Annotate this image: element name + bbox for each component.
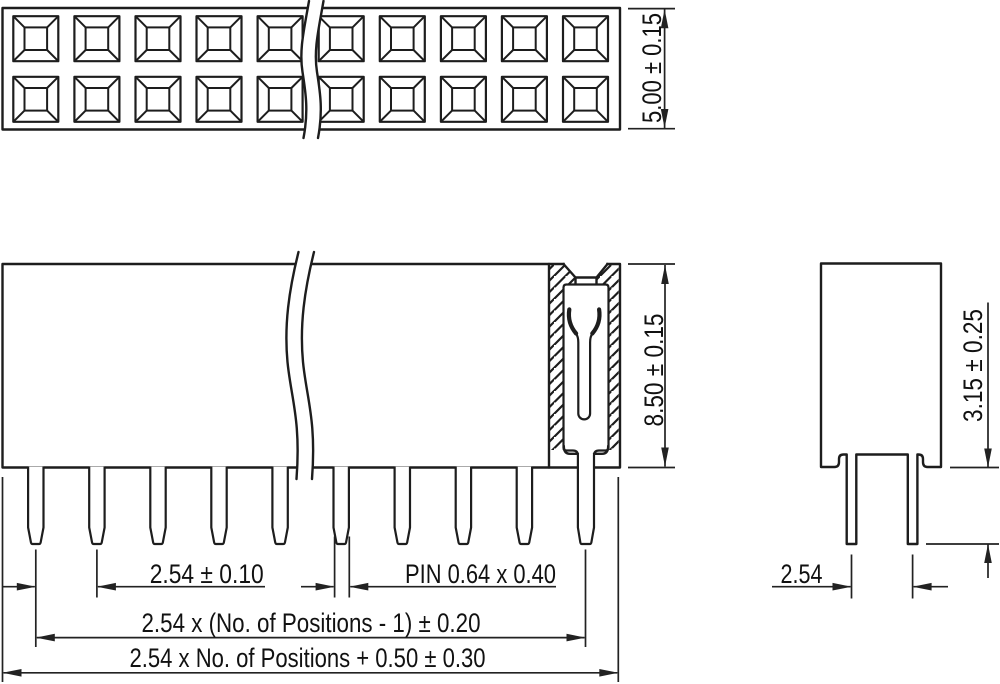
svg-text:8.50 ± 0.15: 8.50 ± 0.15: [639, 314, 669, 427]
svg-text:5.00 ± 0.15: 5.00 ± 0.15: [637, 13, 667, 123]
svg-text:2.54 x No. of Positions + 0.50: 2.54 x No. of Positions + 0.50 ± 0.30: [130, 643, 486, 673]
svg-text:PIN 0.64 x 0.40: PIN 0.64 x 0.40: [405, 559, 556, 589]
svg-text:3.15 ± 0.25: 3.15 ± 0.25: [958, 309, 988, 422]
svg-text:2.54 x (No. of Positions - 1): 2.54 x (No. of Positions - 1) ± 0.20: [142, 608, 481, 638]
svg-text:2.54 ± 0.10: 2.54 ± 0.10: [150, 559, 264, 589]
svg-text:2.54: 2.54: [781, 559, 823, 589]
